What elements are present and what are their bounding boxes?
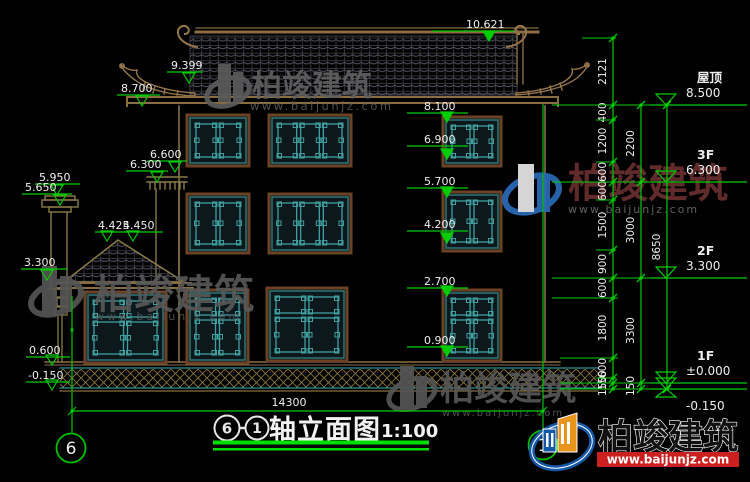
dim-label: 150 — [597, 376, 609, 396]
window — [267, 288, 347, 361]
elevation-marker: 6.300 — [126, 158, 168, 182]
watermark-logo-icon — [500, 164, 564, 220]
logo-block: 柏竣建筑 www.baijunjz.com — [526, 413, 739, 476]
dim-label: 1200 — [597, 128, 609, 155]
title-axis-from: 6 — [222, 420, 232, 438]
elevation-marker: 4.450 — [123, 219, 155, 241]
floor-label: 屋顶 — [697, 70, 723, 85]
elevation-marker-label: 0.900 — [424, 334, 456, 347]
axis-node — [71, 329, 74, 332]
elevation-marker-label: 9.399 — [171, 59, 203, 72]
watermark-brand: 柏竣建筑 — [440, 369, 576, 409]
title-scale: 1:100 — [381, 421, 438, 442]
elevation-marker-label: 3.300 — [24, 256, 56, 269]
watermark-url: www.baijunjz.com — [442, 408, 564, 419]
total-width-label: 14300 — [272, 396, 307, 409]
elevation-marker: 5.650 — [22, 181, 72, 205]
floor-elevation: ±0.000 — [686, 364, 730, 378]
floor-level-marker: 2F3.300 — [650, 243, 747, 278]
dim-label: 900 — [597, 254, 609, 274]
dimension-chain: 220030003300150 — [625, 101, 645, 396]
elevation-marker-label: 5.700 — [424, 175, 456, 188]
floor-elevation: 8.500 — [686, 86, 720, 100]
title-underline-thick — [213, 441, 429, 445]
window-layer — [85, 115, 501, 363]
floor-label: 3F — [697, 147, 714, 162]
drawing-title: 6 1 轴立面图 1:100 — [213, 414, 438, 451]
floor-elevation: 6.300 — [686, 163, 720, 177]
dim-label: 3300 — [625, 317, 637, 344]
elevation-marker-label: 6.900 — [424, 133, 456, 146]
dim-label: 2121 — [597, 58, 609, 85]
dim-label: 2200 — [625, 130, 637, 157]
dim-label: 8650 — [651, 234, 663, 261]
dim-label: 600 — [597, 278, 609, 298]
floor-label: 1F — [697, 348, 714, 363]
elevation-marker-label: 4.200 — [424, 218, 456, 231]
window — [269, 115, 351, 166]
level-triangle-icon — [656, 267, 676, 278]
logo-url: www.baijunjz.com — [607, 453, 730, 467]
dim-label: 1500 — [597, 212, 609, 239]
dim-label: 1800 — [597, 315, 609, 342]
elevation-marker-label: 8.100 — [424, 100, 456, 113]
elevation-marker-label: 5.650 — [25, 181, 57, 194]
eave-horn-right — [516, 63, 589, 95]
floor-elevation: 3.300 — [686, 259, 720, 273]
window — [443, 290, 501, 361]
window — [187, 115, 249, 166]
elevation-marker-label: 10.621 — [466, 18, 505, 31]
level-triangle-icon — [656, 94, 676, 105]
watermark-url: www.baijunjz.com — [95, 310, 242, 323]
window — [269, 194, 351, 253]
elevation-marker-label: 4.450 — [123, 219, 155, 232]
axis-bubble-label: 6 — [66, 439, 77, 459]
title-underline-thin — [213, 448, 429, 451]
floor-elevation: -0.150 — [686, 399, 725, 413]
dim-label: 3000 — [625, 217, 637, 244]
elevation-marker-label: 8.700 — [121, 82, 153, 95]
dim-label: 150 — [625, 376, 637, 396]
cad-elevation-screenshot: 柏竣建筑 www.baijunjz.com 柏竣建筑 www.baijunjz.… — [0, 0, 750, 482]
elevation-marker-label: 6.300 — [130, 158, 162, 171]
watermark-url: www.baijunjz.com — [568, 203, 699, 216]
floor-level-marker: 屋顶8.500 — [650, 70, 747, 105]
watermark-middle-left: 柏竣建筑 www.baijunjz.com — [26, 266, 254, 323]
watermark-url: www.baijunjz.com — [250, 99, 394, 113]
title-axis-to: 1 — [252, 421, 262, 437]
dim-label: 600 — [597, 181, 609, 201]
floor-label: 2F — [697, 243, 714, 258]
dim-label: 600 — [597, 162, 609, 182]
dimension-chain: 8650 — [651, 101, 671, 393]
window — [187, 194, 249, 253]
watermark-layer: 柏竣建筑 www.baijunjz.com 柏竣建筑 www.baijunjz.… — [26, 64, 728, 419]
elevation-drawing: 柏竣建筑 www.baijunjz.com 柏竣建筑 www.baijunjz.… — [0, 0, 750, 482]
